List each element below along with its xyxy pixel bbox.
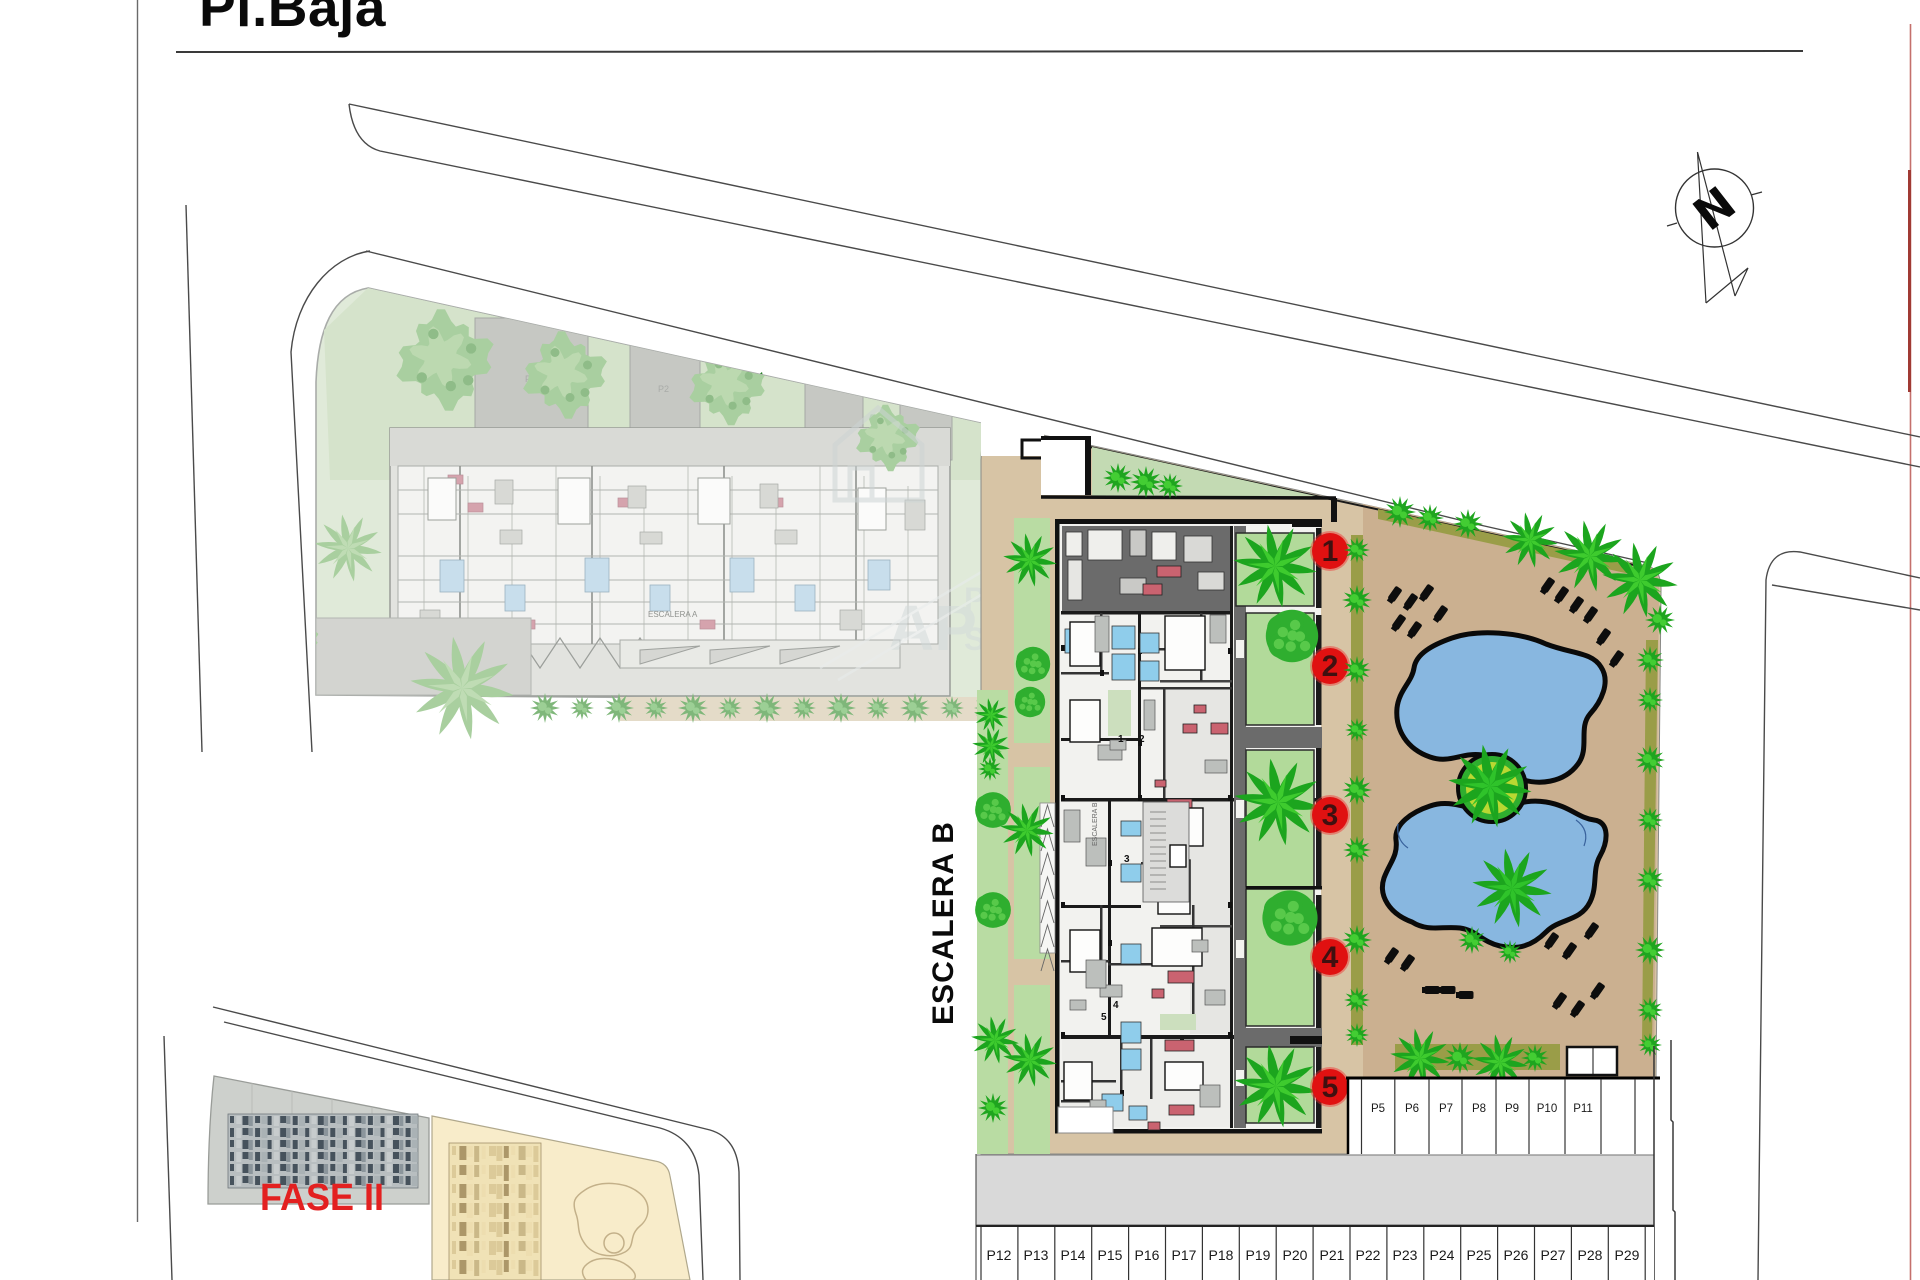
svg-text:P8: P8 [1472, 1103, 1486, 1115]
svg-text:P9: P9 [1505, 1103, 1519, 1115]
svg-text:P6: P6 [1405, 1103, 1419, 1115]
svg-text:P24: P24 [1430, 1247, 1455, 1263]
svg-text:P25: P25 [1467, 1247, 1492, 1263]
svg-text:P14: P14 [1061, 1247, 1086, 1263]
svg-text:P22: P22 [1356, 1247, 1381, 1263]
svg-text:FASE II: FASE II [260, 1177, 384, 1219]
svg-text:3: 3 [1124, 854, 1130, 865]
svg-text:P20: P20 [1283, 1247, 1308, 1263]
svg-text:P10: P10 [1537, 1103, 1557, 1115]
svg-text:P11: P11 [1573, 1103, 1593, 1115]
svg-text:P16: P16 [1135, 1247, 1160, 1263]
svg-text:P27: P27 [1541, 1247, 1566, 1263]
svg-text:5: 5 [1101, 1012, 1107, 1023]
svg-text:P19: P19 [1246, 1247, 1271, 1263]
svg-text:P18: P18 [1209, 1247, 1234, 1263]
svg-text:1: 1 [1118, 734, 1124, 745]
svg-text:P23: P23 [1393, 1247, 1418, 1263]
svg-text:P17: P17 [1172, 1247, 1197, 1263]
svg-text:ESCALERA B: ESCALERA B [927, 821, 960, 1025]
svg-text:P28: P28 [1578, 1247, 1603, 1263]
svg-text:P29: P29 [1615, 1247, 1640, 1263]
svg-text:P26: P26 [1504, 1247, 1529, 1263]
svg-text:P21: P21 [1320, 1247, 1345, 1263]
svg-text:P7: P7 [1439, 1103, 1453, 1115]
svg-text:3: 3 [1322, 799, 1339, 832]
svg-text:P2: P2 [658, 384, 669, 394]
svg-text:Pl.Baja: Pl.Baja [199, 0, 386, 38]
svg-text:P15: P15 [1098, 1247, 1123, 1263]
svg-text:4: 4 [1322, 941, 1339, 974]
svg-text:ESCALERA A: ESCALERA A [648, 610, 698, 619]
svg-text:P13: P13 [1024, 1247, 1049, 1263]
svg-text:2: 2 [1322, 650, 1339, 683]
svg-text:5: 5 [1322, 1071, 1339, 1104]
svg-text:P5: P5 [1371, 1103, 1385, 1115]
svg-text:4: 4 [1113, 1000, 1119, 1011]
svg-text:1: 1 [1322, 535, 1339, 568]
svg-text:2: 2 [1139, 734, 1145, 745]
svg-text:ESCALERA B: ESCALERA B [1092, 802, 1099, 846]
svg-text:P12: P12 [987, 1247, 1012, 1263]
